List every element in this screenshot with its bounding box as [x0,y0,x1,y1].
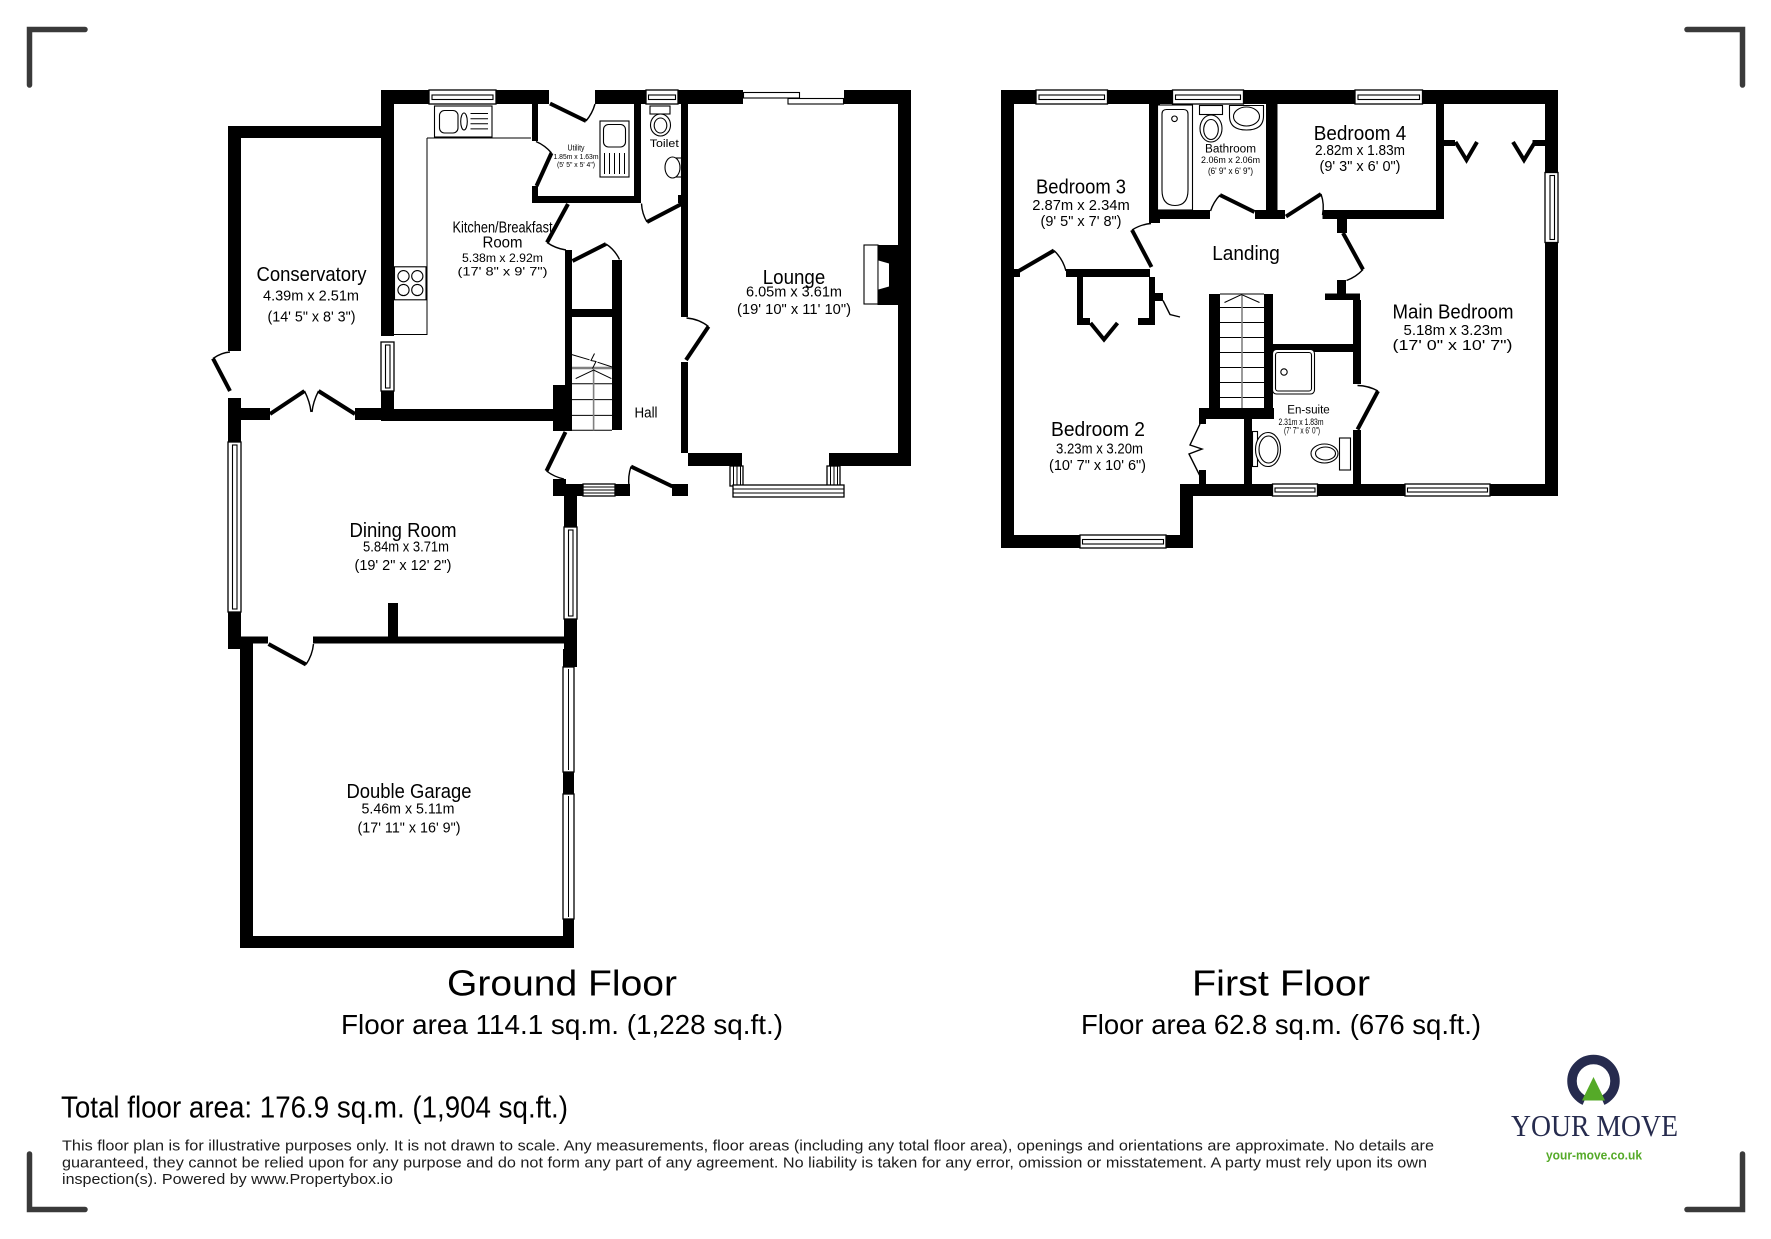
svg-text:Utility: Utility [568,144,585,153]
svg-text:Total floor area: 176.9 sq.m.: Total floor area: 176.9 sq.m. (1,904 sq.… [61,1091,568,1125]
svg-text:guaranteed, they cannot be rel: guaranteed, they cannot be relied upon f… [62,1155,1427,1172]
svg-text:Bathroom: Bathroom [1205,144,1256,156]
svg-text:Conservatory: Conservatory [257,264,367,286]
svg-text:3.23m x 3.20m: 3.23m x 3.20m [1056,442,1143,458]
svg-text:Ground Floor: Ground Floor [447,963,677,1004]
svg-text:5.18m x 3.23m: 5.18m x 3.23m [1404,323,1503,339]
svg-text:2.87m x 2.34m: 2.87m x 2.34m [1032,198,1130,214]
svg-text:(9' 3" x 6' 0"): (9' 3" x 6' 0") [1320,159,1401,175]
svg-text:(17' 0" x 10' 7"): (17' 0" x 10' 7") [1393,338,1513,354]
svg-text:Floor area 62.8 sq.m. (676 sq.: Floor area 62.8 sq.m. (676 sq.ft.) [1081,1009,1481,1040]
svg-text:Bedroom 2: Bedroom 2 [1051,419,1145,441]
svg-text:Bedroom 3: Bedroom 3 [1036,177,1126,199]
svg-text:(9' 5" x 7' 8"): (9' 5" x 7' 8") [1041,214,1122,230]
svg-text:En-suite: En-suite [1287,405,1330,417]
svg-text:(5' 5" x 5' 4"): (5' 5" x 5' 4") [557,162,595,169]
svg-text:(17' 11" x 16' 9"): (17' 11" x 16' 9") [358,821,461,837]
svg-text:YOUR MOVE: YOUR MOVE [1511,1108,1678,1143]
svg-text:(7' 7" x 6' 0"): (7' 7" x 6' 0") [1284,426,1320,437]
svg-text:4.39m x 2.51m: 4.39m x 2.51m [263,289,359,305]
svg-text:Hall: Hall [635,405,658,422]
svg-text:(19' 10" x 11' 10"): (19' 10" x 11' 10") [737,302,851,318]
svg-text:2.82m x 1.83m: 2.82m x 1.83m [1315,143,1405,159]
svg-text:5.46m x 5.11m: 5.46m x 5.11m [362,802,455,818]
svg-text:Room: Room [483,235,523,252]
svg-text:This floor plan is for illustr: This floor plan is for illustrative purp… [62,1138,1434,1155]
svg-text:Floor area 114.1 sq.m. (1,228: Floor area 114.1 sq.m. (1,228 sq.ft.) [341,1009,783,1040]
svg-text:(14' 5" x 8' 3"): (14' 5" x 8' 3") [268,310,356,326]
svg-text:inspection(s). Powered by www.: inspection(s). Powered by www.Propertybo… [62,1171,393,1188]
svg-text:1.85m x 1.63m: 1.85m x 1.63m [554,154,599,161]
svg-text:Toilet: Toilet [650,138,679,150]
svg-text:First Floor: First Floor [1192,963,1370,1004]
svg-text:5.84m x 3.71m: 5.84m x 3.71m [363,540,449,556]
svg-text:2.06m x 2.06m: 2.06m x 2.06m [1201,155,1260,166]
svg-text:Double Garage: Double Garage [347,781,472,803]
svg-text:(6' 9" x 6' 9"): (6' 9" x 6' 9") [1208,166,1253,177]
svg-text:your-move.co.uk: your-move.co.uk [1546,1149,1642,1163]
svg-text:Bedroom 4: Bedroom 4 [1314,123,1407,145]
svg-text:(17' 8" x 9' 7"): (17' 8" x 9' 7") [458,265,548,279]
svg-text:5.38m x 2.92m: 5.38m x 2.92m [462,251,543,265]
svg-text:Landing: Landing [1212,243,1280,265]
svg-text:(19' 2" x 12' 2"): (19' 2" x 12' 2") [355,558,452,574]
svg-text:6.05m x 3.61m: 6.05m x 3.61m [746,285,842,301]
svg-text:Main Bedroom: Main Bedroom [1393,302,1514,324]
svg-text:(10' 7" x 10' 6"): (10' 7" x 10' 6") [1049,458,1146,474]
